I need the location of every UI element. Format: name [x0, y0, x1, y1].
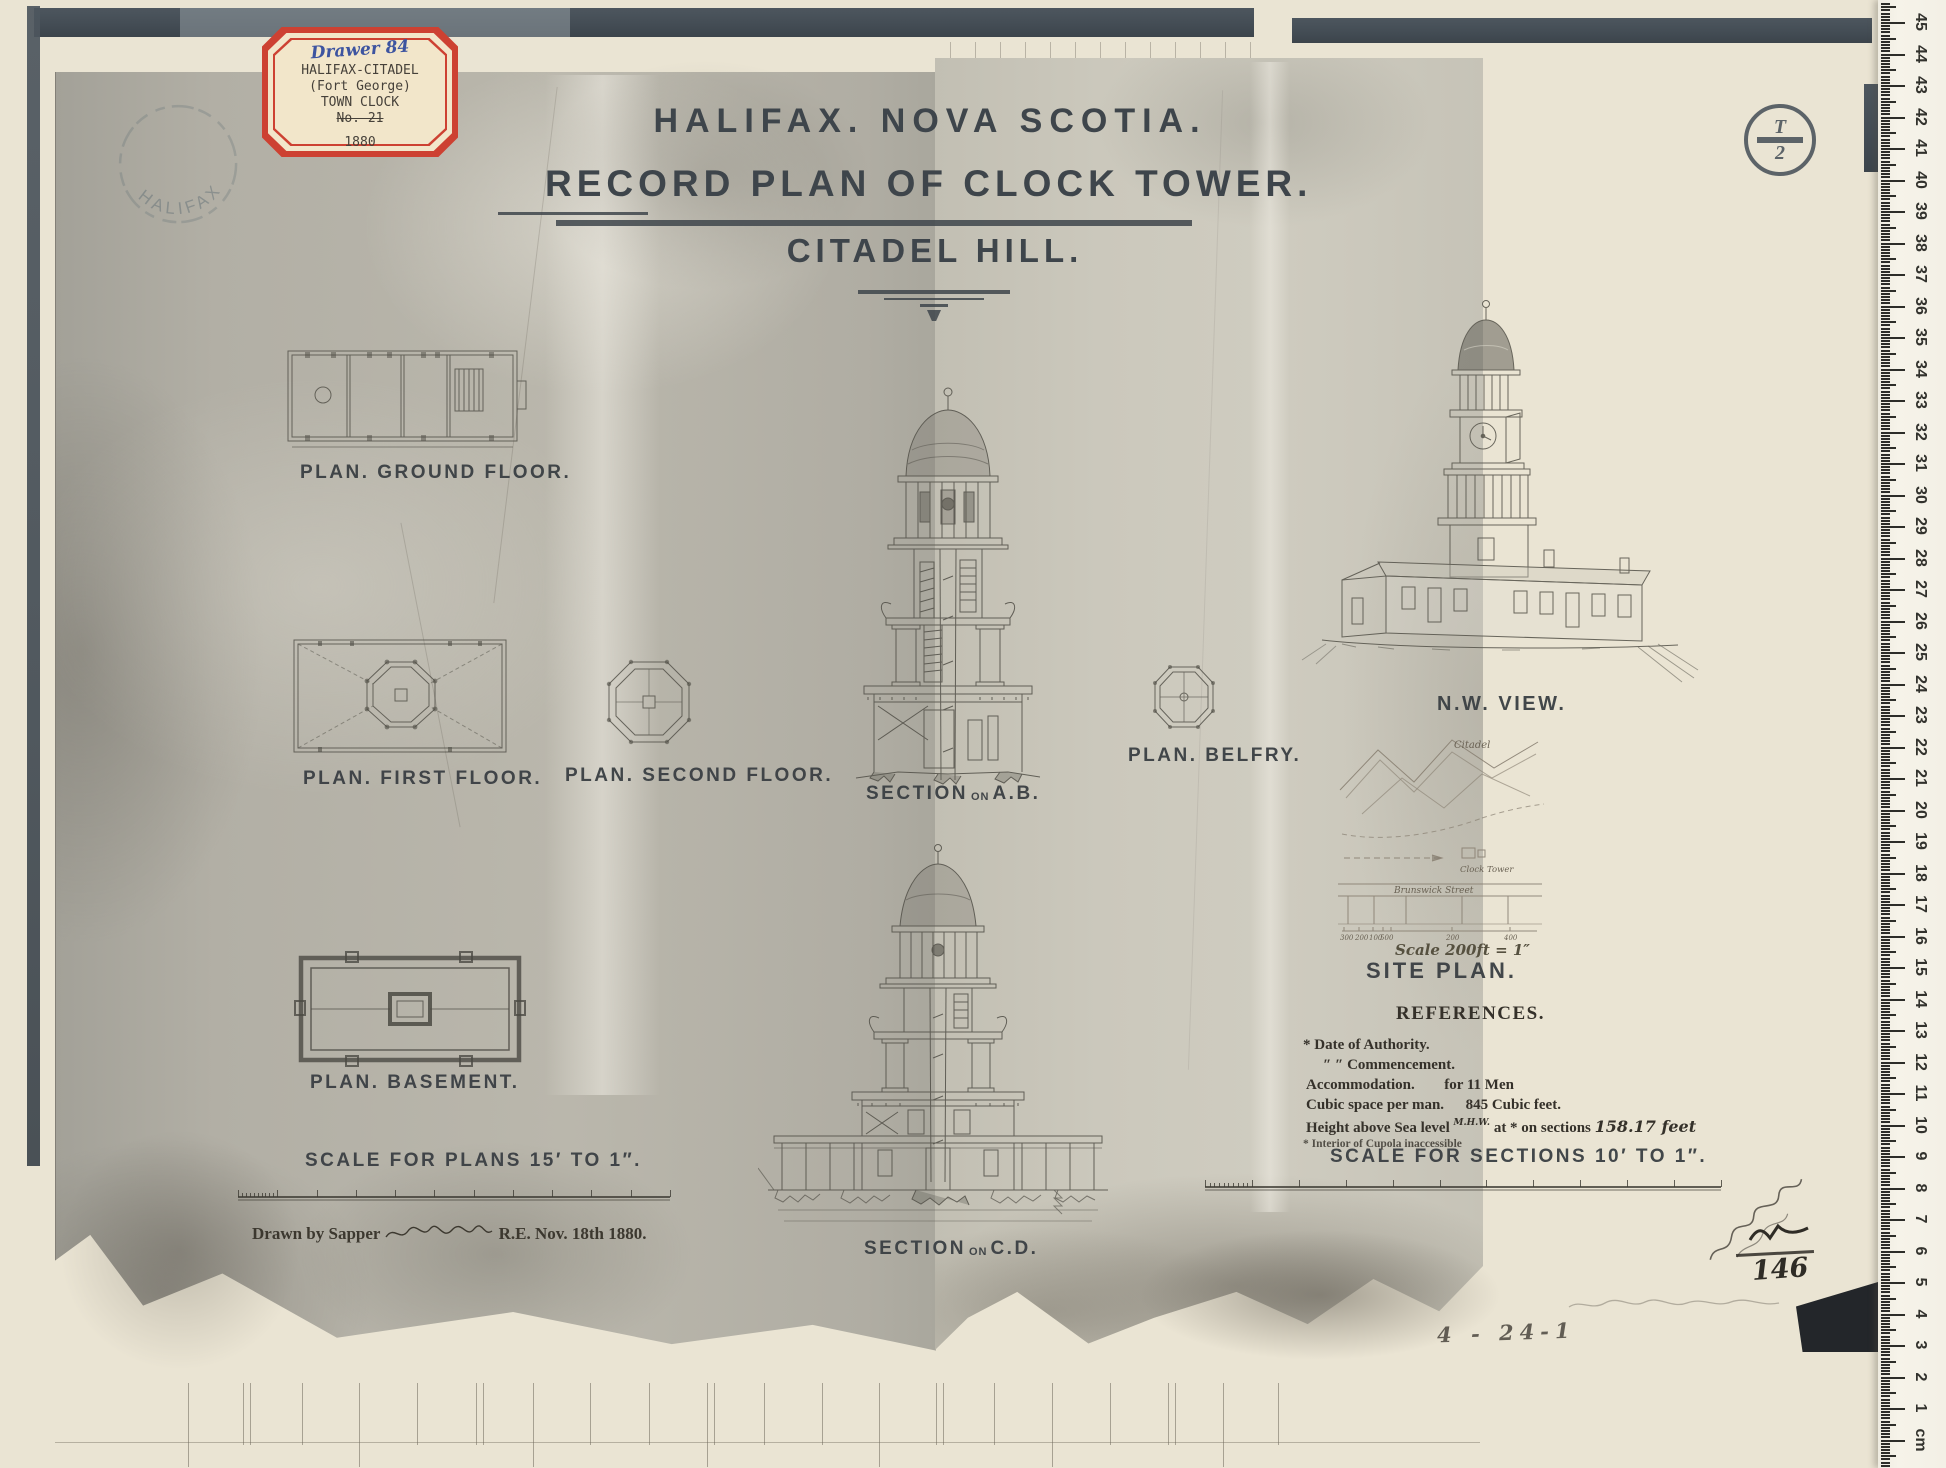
- ground-floor-label: PLAN. GROUND FLOOR.: [300, 462, 571, 484]
- cubic-value: 845 Cubic feet.: [1466, 1097, 1561, 1113]
- attribution-line: Drawn by Sapper R.E. Nov. 18th 1880.: [252, 1222, 646, 1244]
- title-city: HALIFAX. NOVA SCOTIA.: [620, 102, 1240, 141]
- second-floor-label: PLAN. SECOND FLOOR.: [565, 765, 833, 787]
- label-year: 1880: [262, 135, 458, 150]
- scan-strip-left: [27, 6, 40, 1166]
- scan-wedge-bottom-right: [1796, 1282, 1878, 1352]
- scale-for-sections-label: SCALE FOR SECTIONS 10′ TO 1″.: [1330, 1146, 1707, 1168]
- references-line-authority: * Date of Authority.: [1303, 1037, 1430, 1054]
- scale-for-plans-label: SCALE FOR PLANS 15′ TO 1″.: [305, 1150, 642, 1172]
- section-ab-ref: A.B.: [992, 783, 1040, 804]
- scale-bar-sections: [1205, 1178, 1721, 1194]
- site-plan-citadel-text: Citadel: [1454, 740, 1490, 751]
- attribution-prefix: Drawn by Sapper: [252, 1224, 380, 1243]
- site-plan-clock-tower-text: Clock Tower: [1460, 865, 1514, 875]
- cubic-label: Cubic space per man.: [1306, 1097, 1444, 1113]
- sapper-signature-scribble: [384, 1222, 494, 1244]
- title-underline-main: [556, 220, 1192, 226]
- section-word: SECTION: [866, 783, 968, 804]
- section-on: ON: [969, 1246, 988, 1258]
- site-scale-tick: 300: [1340, 934, 1354, 942]
- attribution-suffix: R.E. Nov. 18th 1880.: [499, 1224, 647, 1243]
- pencil-number-4-24-1: 4 - 24-1: [1437, 1318, 1576, 1348]
- scan-band-top-right: [1292, 18, 1872, 43]
- site-scale-tick: 200: [1354, 934, 1369, 942]
- scan-tab-right: [1864, 84, 1879, 172]
- section-word: SECTION: [864, 1238, 966, 1259]
- basement-plan-drawing: [294, 945, 526, 1075]
- archive-label: Drawer 84 HALIFAX-CITADEL (Fort George) …: [262, 27, 458, 157]
- first-floor-plan-drawing: [288, 630, 514, 764]
- basement-label: PLAN. BASEMENT.: [310, 1072, 520, 1094]
- section-cd-drawing: [758, 838, 1120, 1236]
- references-line-cubic: Cubic space per man. 845 Cubic feet.: [1306, 1097, 1561, 1114]
- scale-bar-plans: [238, 1188, 670, 1204]
- pencil-number-146: 146: [1751, 1252, 1809, 1287]
- nw-view-drawing: [1282, 292, 1702, 692]
- plate-letter: T: [1774, 118, 1786, 136]
- label-line-fort: (Fort George): [262, 79, 458, 94]
- references-title: REFERENCES.: [1396, 1003, 1545, 1025]
- site-plan-street-text: Brunswick Street: [1393, 886, 1474, 896]
- site-plan-drawing: Citadel Clock Tower Brunswick Street 300…: [1332, 726, 1548, 942]
- references-line-height: Height above Sea level M.H.W. at * on se…: [1306, 1117, 1696, 1137]
- height-insert: M.H.W.: [1453, 1118, 1490, 1128]
- height-post: at * on sections: [1494, 1120, 1591, 1136]
- halifax-stamp-text: HALIFAX: [132, 163, 230, 231]
- belfry-plan-drawing: [1146, 655, 1224, 745]
- bottom-edge-ticks: [0, 1383, 1480, 1468]
- label-line-number: No. 21: [262, 111, 458, 126]
- nw-view-label: N.W. VIEW.: [1437, 693, 1566, 716]
- title-main: RECORD PLAN OF CLOCK TOWER.: [545, 163, 1200, 205]
- title-underline-lead: [498, 212, 648, 215]
- accommodation-label: Accommodation.: [1306, 1077, 1415, 1093]
- section-ab-label: SECTIONONA.B.: [866, 783, 1040, 805]
- title-hill: CITADEL HILL.: [770, 232, 1100, 270]
- title-ornament-tick: [920, 304, 948, 307]
- accommodation-value: for 11 Men: [1444, 1077, 1514, 1093]
- title-ornament-rule2: [884, 298, 984, 300]
- site-plan-scale-note: Scale 200ft = 1″: [1395, 941, 1530, 959]
- pencil-faint-note: [1565, 1295, 1785, 1315]
- label-line-clock: TOWN CLOCK: [262, 95, 458, 110]
- references-line-accommodation: Accommodation. for 11 Men: [1306, 1077, 1514, 1094]
- section-cd-ref: C.D.: [990, 1238, 1038, 1259]
- ground-floor-plan-drawing: [283, 335, 527, 461]
- pencil-check-flourish: [1744, 1222, 1814, 1252]
- references-line-commencement: ″ ″ Commencement.: [1323, 1057, 1455, 1074]
- section-on: ON: [971, 791, 990, 803]
- height-pre: Height above Sea level: [1306, 1120, 1450, 1136]
- height-value: 158.17 feet: [1595, 1117, 1696, 1136]
- title-ornament-rule1: [858, 290, 1010, 294]
- sheet-highlight: [545, 75, 660, 1095]
- site-scale-tick: 0: [1389, 934, 1394, 942]
- belfry-label: PLAN. BELFRY.: [1128, 745, 1301, 767]
- section-ab-drawing: [828, 380, 1068, 790]
- second-floor-plan-drawing: [602, 645, 696, 761]
- scanned-drawing-page: Drawer 84 HALIFAX-CITADEL (Fort George) …: [0, 0, 1946, 1468]
- section-cd-label: SECTIONONC.D.: [864, 1238, 1038, 1260]
- site-plan-label: SITE PLAN.: [1366, 958, 1517, 984]
- first-floor-label: PLAN. FIRST FLOOR.: [303, 768, 542, 790]
- plate-number-stamp: T 2: [1744, 104, 1816, 176]
- label-line-citadel: HALIFAX-CITADEL: [262, 63, 458, 78]
- ruler: 4544434241403938373635343332313029282726…: [1878, 0, 1946, 1468]
- plate-number: 2: [1775, 144, 1785, 162]
- svg-text:HALIFAX: HALIFAX: [132, 163, 230, 231]
